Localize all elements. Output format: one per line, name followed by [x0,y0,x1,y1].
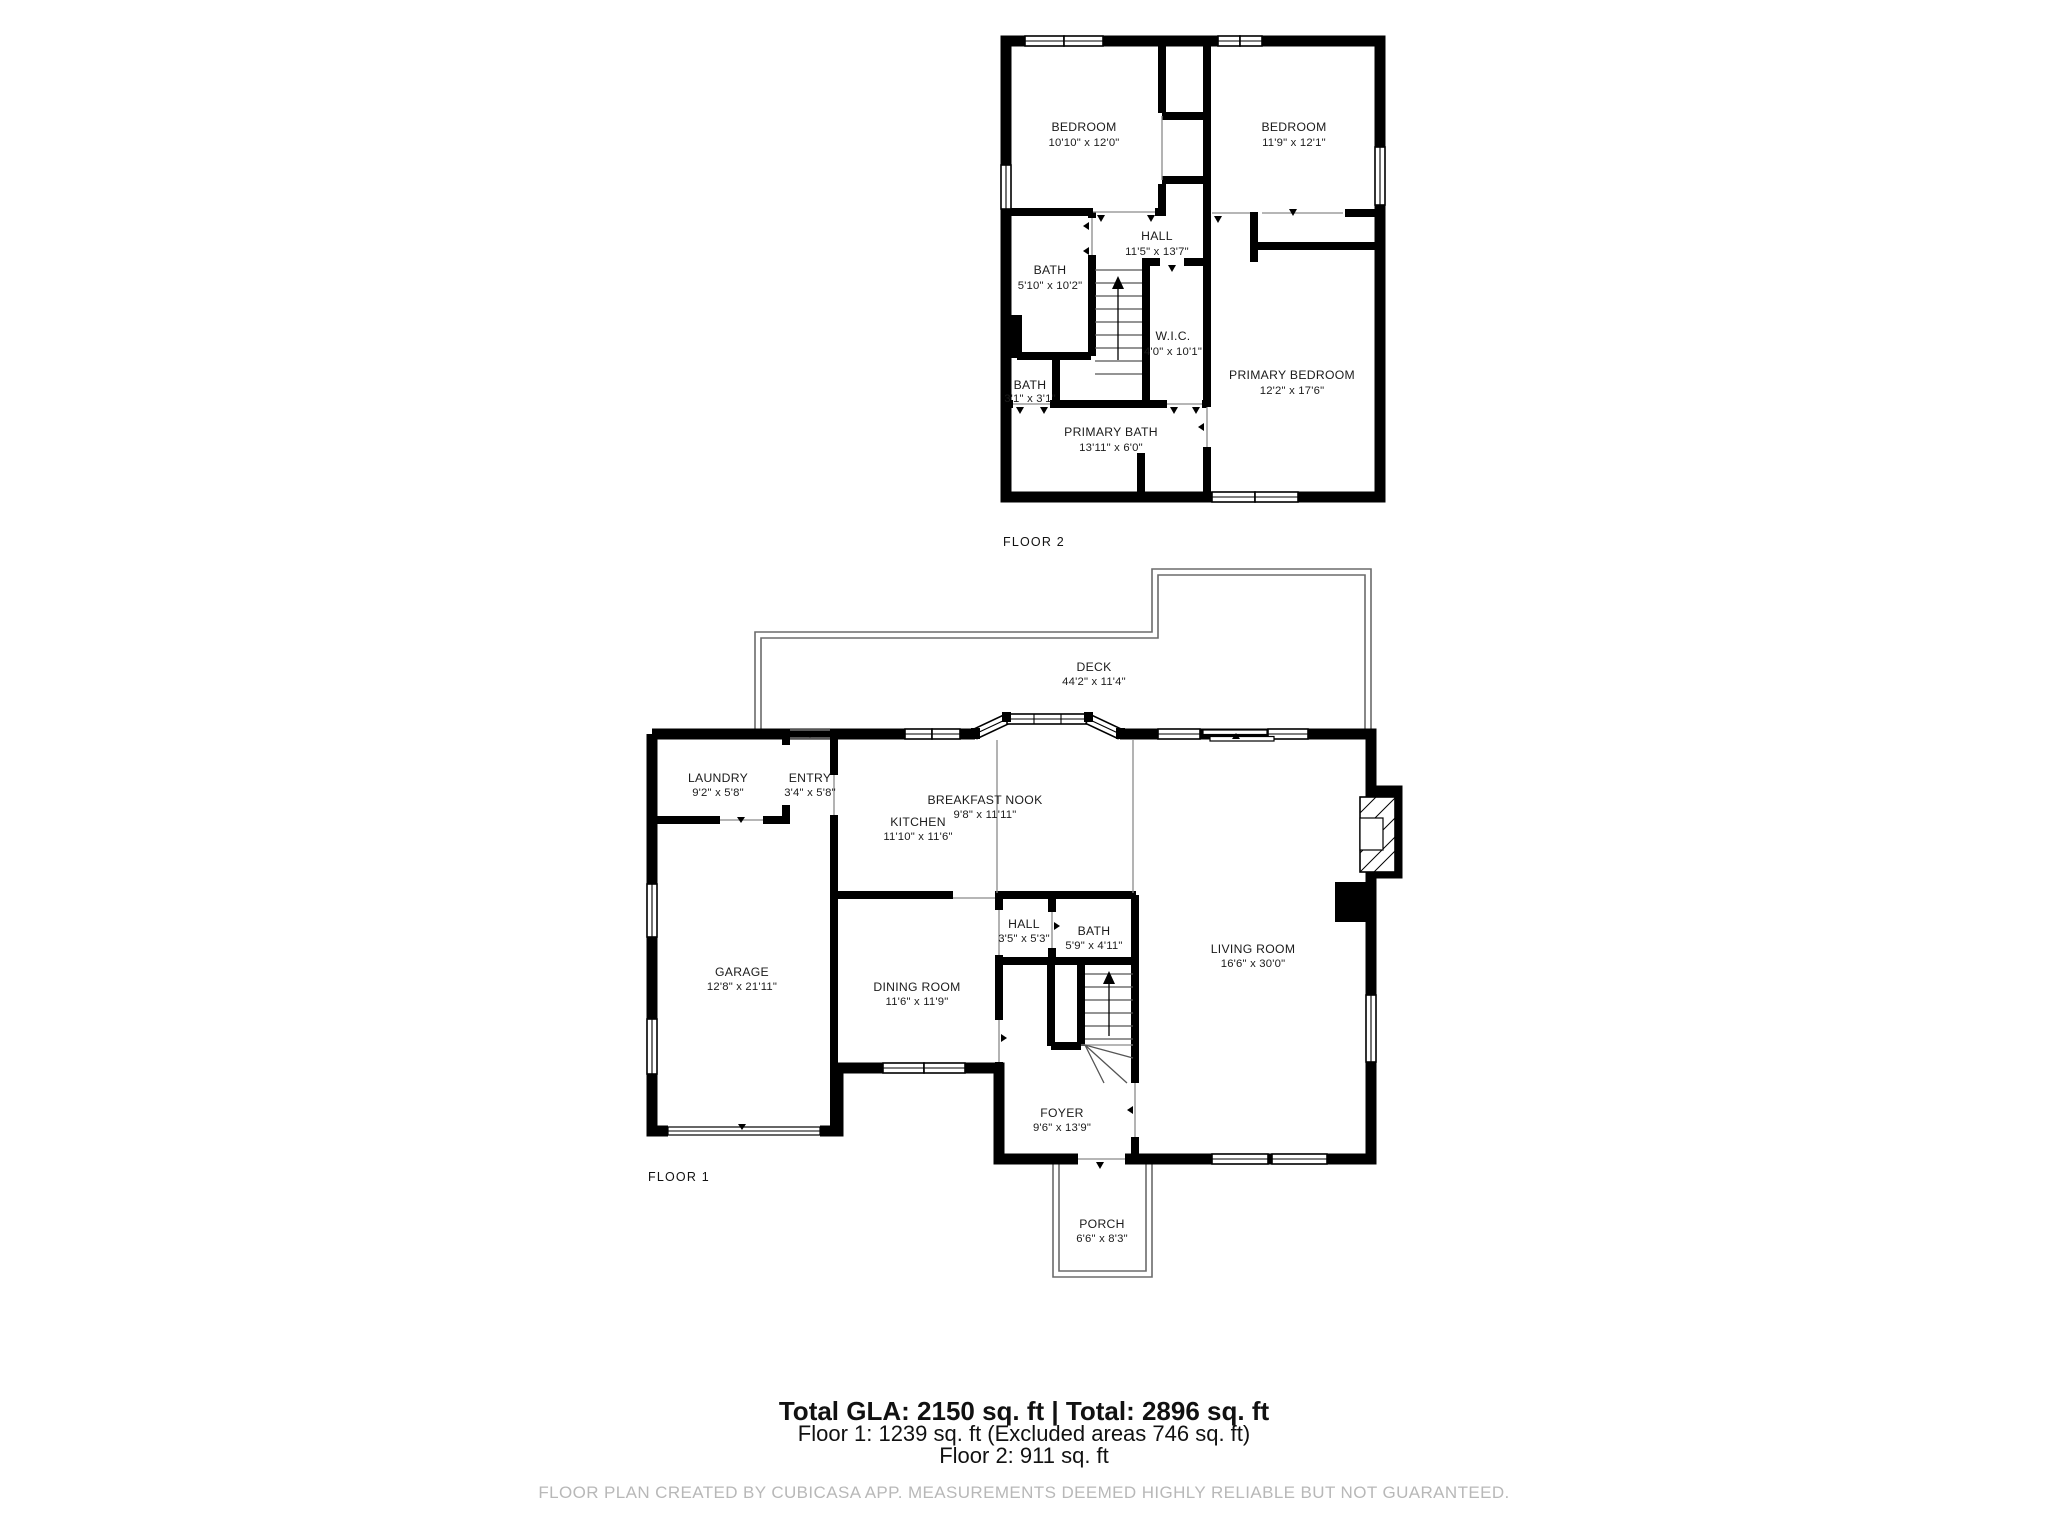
room-dims: 12'2" x 17'6" [1260,385,1325,397]
bay-corner-post [971,728,980,739]
room-label-f1-kitchen: KITCHEN 11'10" x 11'6" [883,815,952,843]
room-dims: 16'6" x 30'0" [1221,958,1286,970]
room-dims: 9'8" x 11'11" [954,809,1017,821]
room-dims: 44'2" x 11'4" [1062,676,1126,688]
room-label-f1-garage: GARAGE 12'8" x 21'11" [707,965,777,993]
floorplan-page: BEDROOM 10'10" x 12'0" BEDROOM 11'9" x 1… [0,0,2048,1536]
garage-door-opening [668,1127,820,1135]
room-name: BEDROOM [1051,120,1116,134]
room-name: BEDROOM [1261,120,1326,134]
room-dims: 6'6" x 8'3" [1076,1233,1128,1245]
floor2-area-text: Floor 2: 911 sq. ft [0,1443,2048,1469]
bay-corner-post [1002,712,1011,722]
room-name: ENTRY [789,771,832,785]
room-name: KITCHEN [890,815,946,829]
room-label-f1-deck: DECK 44'2" x 11'4" [1062,660,1126,688]
room-name: PRIMARY BATH [1064,425,1158,439]
bay-window [971,712,1125,739]
room-label-f1-entry: ENTRY 3'4" x 5'8" [784,771,836,799]
firebox [1360,818,1383,850]
floor2-plan: BEDROOM 10'10" x 12'0" BEDROOM 11'9" x 1… [1001,36,1385,549]
room-dims: 9'6" x 13'9" [1033,1122,1091,1134]
room-label-f1-hall: HALL 3'5" x 5'3" [998,917,1050,945]
room-dims: 4'0" x 10'1" [1144,346,1202,358]
room-dims: 3'1" x 3'1" [1004,393,1056,405]
room-label-f2-hall: HALL 11'5" x 13'7" [1125,229,1189,258]
floor1-stairs [1085,971,1133,1083]
room-dims: 3'5" x 5'3" [998,933,1050,945]
room-dims: 11'5" x 13'7" [1125,246,1189,258]
room-dims: 9'2" x 5'8" [692,787,744,799]
room-label-f1-living-room: LIVING ROOM 16'6" x 30'0" [1211,942,1296,970]
bay-corner-post [1116,728,1125,739]
room-name: PORCH [1079,1217,1125,1231]
room-name: HALL [1008,917,1040,931]
room-dims: 13'11" x 6'0" [1079,442,1143,454]
room-name: DINING ROOM [873,980,960,994]
room-label-f2-bedroom-right: BEDROOM 11'9" x 12'1" [1261,120,1326,149]
room-name: BATH [1034,263,1067,277]
room-dims: 11'6" x 11'9" [886,996,949,1008]
room-label-f1-laundry: LAUNDRY 9'2" x 5'8" [688,771,748,799]
floor2-label: FLOOR 2 [1003,535,1065,549]
room-name: PRIMARY BEDROOM [1229,368,1355,382]
room-name: LAUNDRY [688,771,748,785]
room-dims: 12'8" x 21'11" [707,981,777,993]
room-dims: 5'9" x 4'11" [1065,940,1122,952]
room-dims: 5'10" x 10'2" [1018,280,1083,292]
chimney-hatch [1360,797,1395,872]
room-name: BATH [1078,924,1111,938]
wall-notch [1001,315,1022,358]
room-name: BREAKFAST NOOK [927,793,1042,807]
bay-corner-post [1084,712,1093,722]
room-name: HALL [1141,229,1173,243]
fireplace [1335,882,1370,922]
room-dims: 11'9" x 12'1" [1262,137,1326,149]
room-name: BATH [1014,378,1047,392]
room-label-f2-primary-bedroom: PRIMARY BEDROOM 12'2" x 17'6" [1229,368,1355,397]
room-name: GARAGE [715,965,769,979]
room-label-f1-bath: BATH 5'9" x 4'11" [1065,924,1122,952]
room-label-f2-bath-small: BATH 3'1" x 3'1" [1004,378,1056,405]
room-name: DECK [1076,660,1111,674]
floorplan-canvas: BEDROOM 10'10" x 12'0" BEDROOM 11'9" x 1… [0,0,2048,1536]
room-name: LIVING ROOM [1211,942,1296,956]
disclaimer-text: FLOOR PLAN CREATED BY CUBICASA APP. MEAS… [0,1483,2048,1503]
room-dims: 11'10" x 11'6" [883,831,952,843]
room-name: W.I.C. [1156,329,1191,343]
floor1-label: FLOOR 1 [648,1170,710,1184]
room-label-f1-dining-room: DINING ROOM 11'6" x 11'9" [873,980,960,1008]
room-label-f2-bedroom-left: BEDROOM 10'10" x 12'0" [1048,120,1119,149]
room-name: FOYER [1040,1106,1083,1120]
room-label-f1-foyer: FOYER 9'6" x 13'9" [1033,1106,1091,1134]
room-dims: 10'10" x 12'0" [1048,137,1119,149]
room-dims: 3'4" x 5'8" [784,787,836,799]
room-label-f2-wic: W.I.C. 4'0" x 10'1" [1144,329,1202,358]
room-label-f2-bath: BATH 5'10" x 10'2" [1018,263,1083,292]
floor2-stairs [1095,270,1142,374]
room-label-f2-primary-bath: PRIMARY BATH 13'11" x 6'0" [1064,425,1158,454]
stairs-arrow-head [1103,971,1115,984]
floor1-plan: DECK 44'2" x 11'4" LAUNDRY 9'2" x 5'8" E… [647,569,1397,1277]
deck-outline [755,569,1371,729]
room-label-f1-porch: PORCH 6'6" x 8'3" [1076,1217,1128,1245]
